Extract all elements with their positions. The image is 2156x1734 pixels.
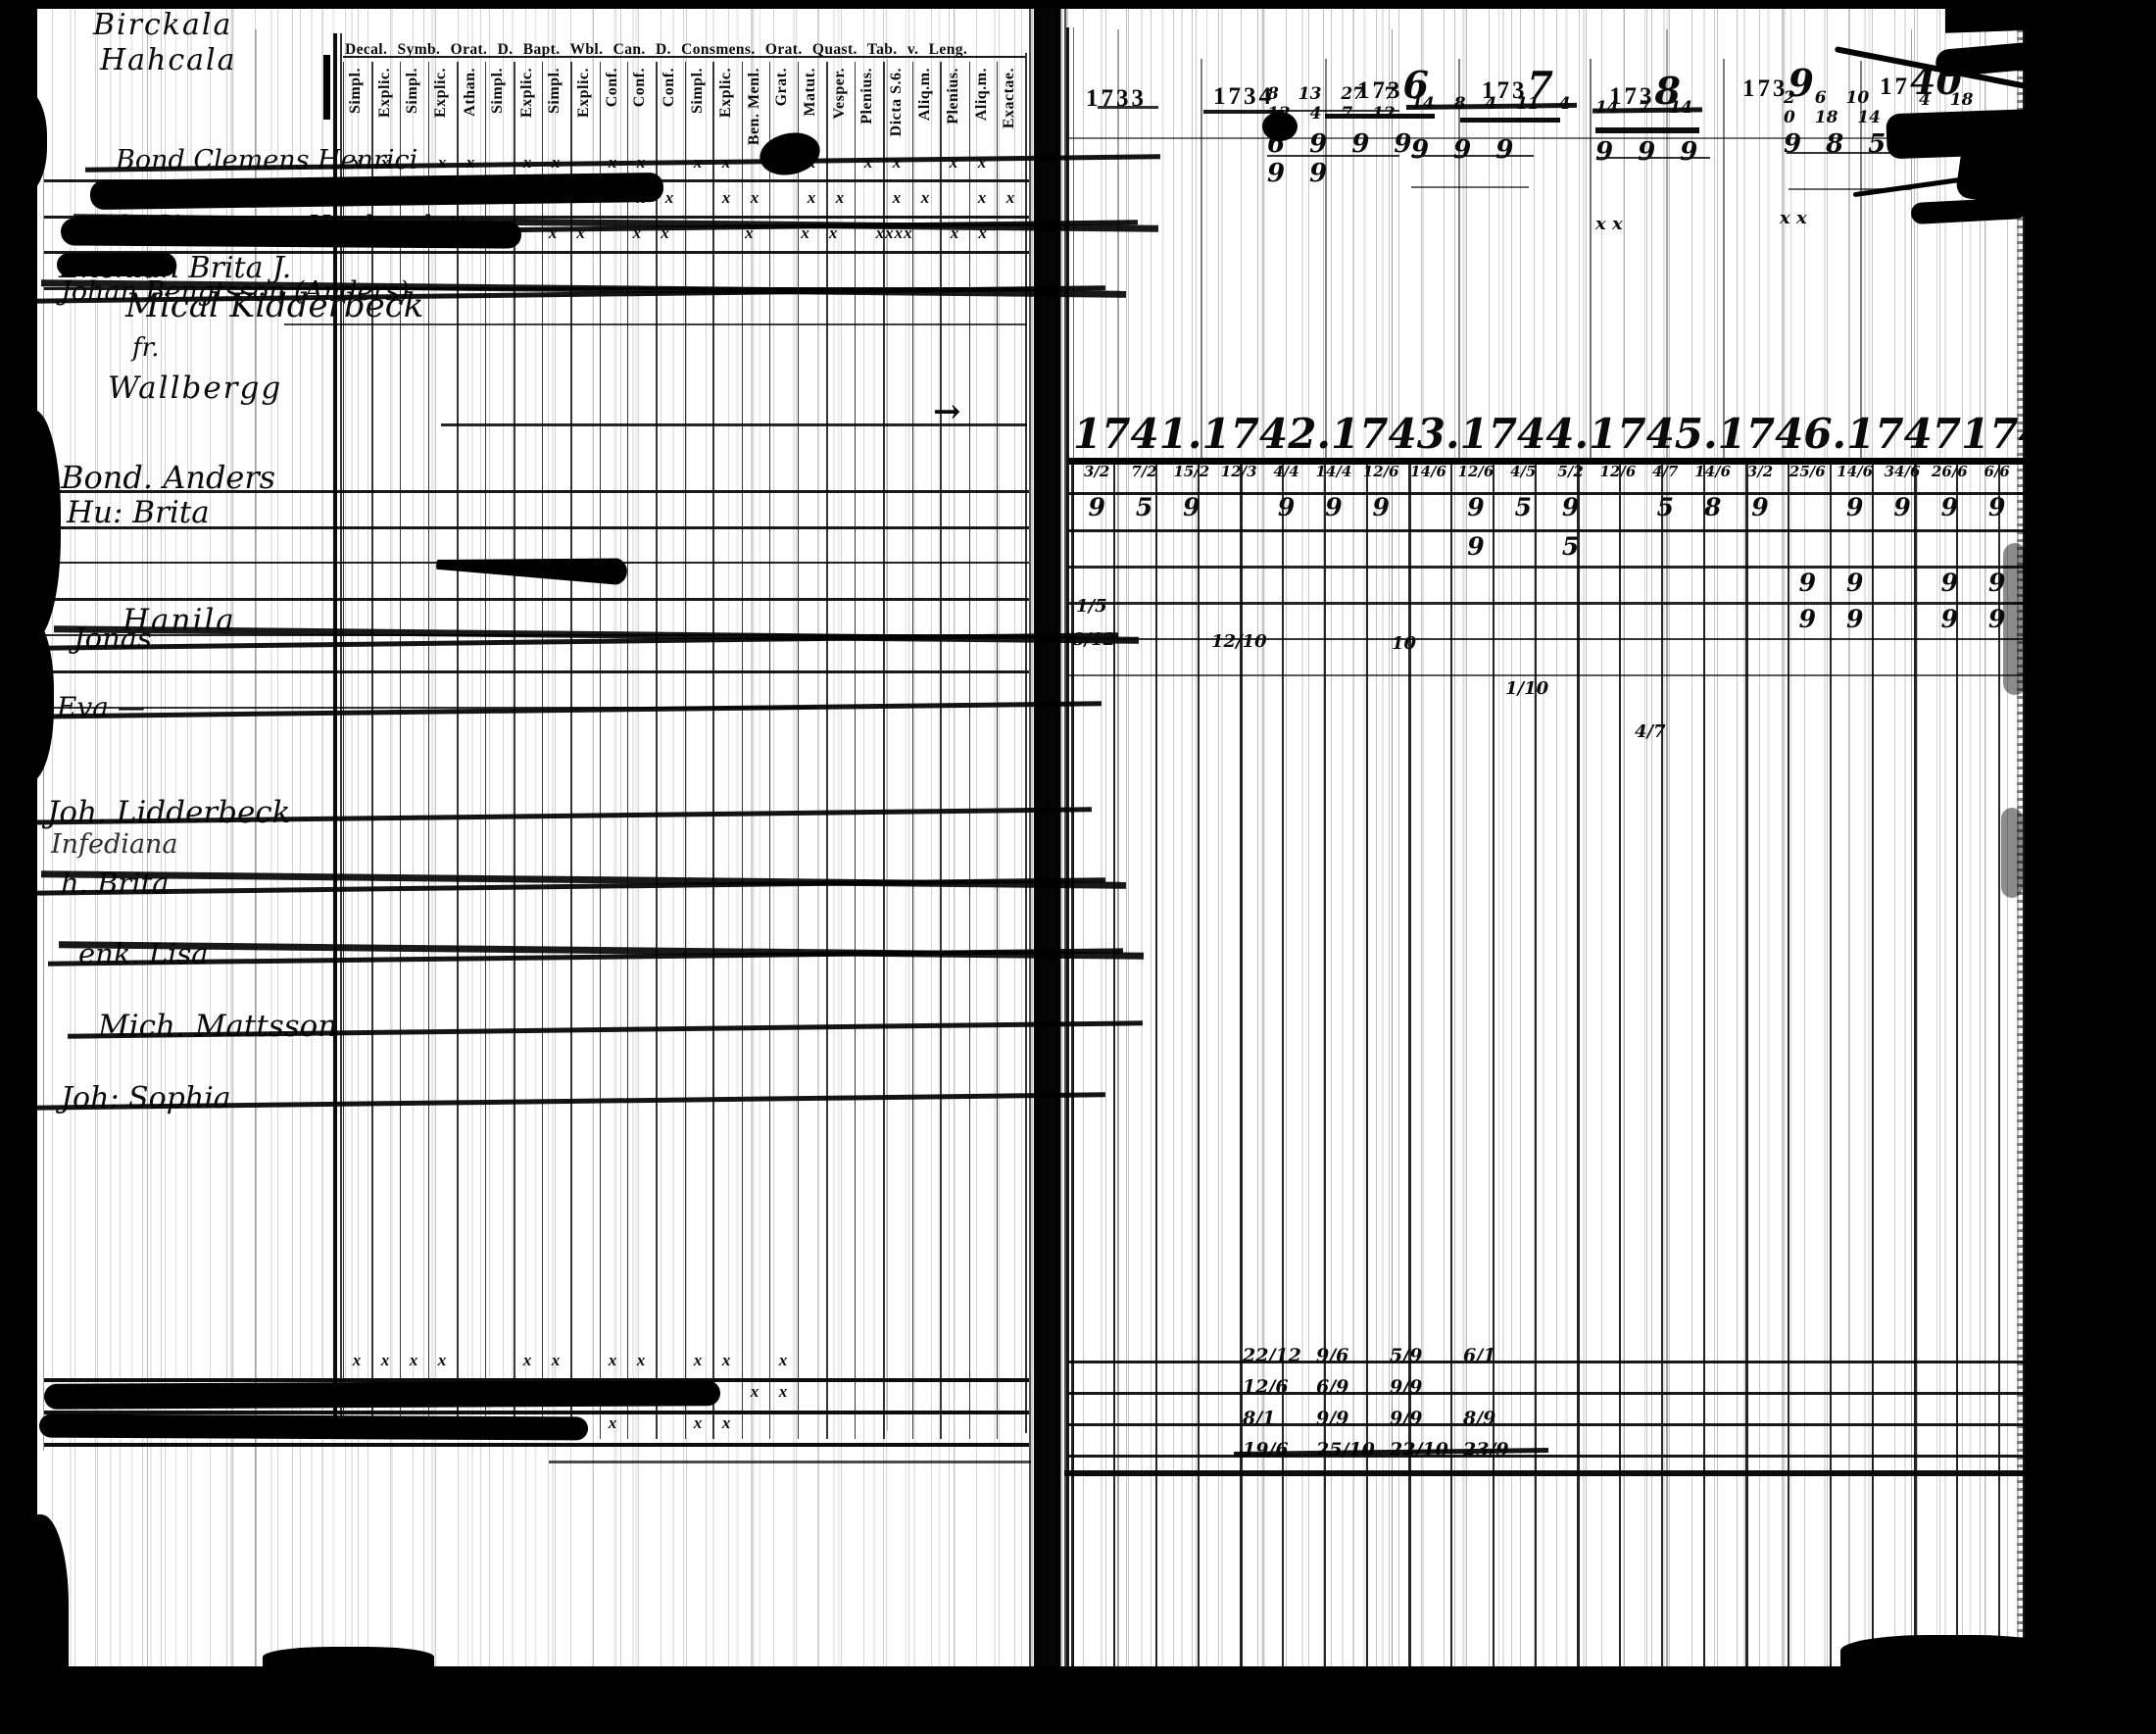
x-mark-cell <box>855 1413 883 1443</box>
year-label: 1744. <box>1460 410 1590 458</box>
grid-column: Matut. <box>798 62 826 1439</box>
x-mark-cell: x <box>371 1351 400 1380</box>
communion-date: 25/10 <box>1316 1439 1390 1461</box>
column-label: Conf. <box>631 68 649 107</box>
attendance-row: 95 <box>1073 532 2021 561</box>
communion-date: 14/6 <box>1689 463 1736 480</box>
rule-line <box>1064 1470 2033 1476</box>
g-mark <box>1215 569 1262 597</box>
grid-column: Explic. <box>428 62 457 1439</box>
communion-group: 14 7 14 9 9 9 <box>1595 98 1697 167</box>
name-entry: Eva — <box>57 691 1061 723</box>
g-mark <box>1262 605 1309 633</box>
grid-column: Conf. <box>656 62 685 1439</box>
rule-line <box>1956 458 1958 1666</box>
communion-date: 8/9 <box>1463 1408 1537 1429</box>
x-mark-cell: x <box>712 1413 741 1443</box>
g-mark <box>1357 605 1404 633</box>
rule-line <box>1200 59 1202 458</box>
communion-group: 2 6 10 0 18 14 9 8 5 <box>1784 88 1886 159</box>
g-mark <box>1120 569 1167 597</box>
communion-date: 3/2 <box>1737 463 1784 480</box>
attendance-marks: 9 8 5 <box>1784 129 1886 159</box>
x-mark-cell <box>826 1351 855 1380</box>
x-mark-cell <box>570 1351 599 1380</box>
x-mark-cell: x <box>769 1351 798 1380</box>
communion-date: 9/9 <box>1390 1376 1463 1398</box>
attendance-row: 9999 <box>1073 605 2021 633</box>
grid-column: Explic. <box>712 62 742 1439</box>
g-mark <box>1310 569 1357 597</box>
communion-date: 14/4 <box>1310 463 1357 480</box>
x-mark-cell: x <box>627 1351 656 1380</box>
year-label: 1734 <box>1213 69 1274 113</box>
edge-vignette-left <box>0 0 37 1734</box>
attendance-row: 9599999595899999 <box>1073 493 2021 521</box>
communion-date: 4/4 <box>1262 463 1309 480</box>
g-mark <box>1879 569 1926 597</box>
grid-column: Explic. <box>514 62 543 1439</box>
x-mark-cell <box>627 1413 656 1443</box>
g-mark <box>1879 532 1926 561</box>
g-mark: 5 <box>1120 493 1167 521</box>
communion-date: 14/6 <box>1404 463 1451 480</box>
column-label: Vesper. <box>831 68 849 120</box>
g-mark <box>1120 532 1167 561</box>
communion-date: 15/2 <box>1168 463 1215 480</box>
rule-line <box>1619 458 1621 1666</box>
g-mark: 9 <box>1832 569 1879 597</box>
rule-line <box>1324 458 1326 1666</box>
communion-date: 22/12 <box>1243 1345 1316 1366</box>
rule-line <box>1068 674 2031 676</box>
g-mark <box>1689 532 1736 561</box>
x-mark-cell <box>826 1413 855 1443</box>
rule-line <box>1068 1455 2031 1458</box>
communion-date: 6/9 <box>1316 1376 1390 1398</box>
g-mark <box>1452 605 1499 633</box>
bottom-dates-row: 8/19/99/98/9 <box>1243 1408 1537 1429</box>
edge-vignette-bottom <box>0 1666 2156 1734</box>
rule-line <box>1282 458 1284 1666</box>
x-mark-cell <box>741 1351 769 1380</box>
grid-column: Simpl. <box>685 62 713 1439</box>
rule-line <box>43 118 44 1451</box>
x-mark-cell <box>457 1351 485 1380</box>
g-mark <box>1737 569 1784 597</box>
x-mark-cell <box>911 1413 940 1443</box>
x-mark-row: xxxxxxxxxxx <box>343 1351 1025 1380</box>
grid-column: Explic. <box>371 62 401 1439</box>
communion-dates-row: 3/27/215/212/34/414/412/614/612/64/55/21… <box>1073 463 2021 480</box>
communion-date: 14/6 <box>1832 463 1879 480</box>
g-mark <box>1168 532 1215 561</box>
grid-column: Aliq.m. <box>912 62 941 1439</box>
stray-mark: 12/10 <box>1211 631 1267 652</box>
grid-column: Simpl. <box>485 62 514 1439</box>
communion-dates-line: 4 18 <box>1919 90 1973 110</box>
rule-line <box>1366 458 1368 1666</box>
communion-date: 12/6 <box>1357 463 1404 480</box>
g-mark <box>1499 569 1546 597</box>
column-label: Conf. <box>661 68 678 107</box>
g-mark <box>1879 605 1926 633</box>
communion-date: 9/6 <box>1316 1345 1390 1366</box>
ink-blob <box>1262 112 1298 141</box>
g-mark: 9 <box>1310 493 1357 521</box>
column-label: Explic. <box>432 68 450 118</box>
g-mark <box>1784 532 1831 561</box>
bottom-dates-row: 12/66/99/9 <box>1243 1376 1537 1398</box>
x-mark-cell: x <box>599 1413 627 1443</box>
g-mark <box>1926 532 1973 561</box>
x-mark-cell <box>798 1413 826 1443</box>
communion-date: 4/7 <box>1641 463 1689 480</box>
x-mark-cell: x <box>684 1413 712 1443</box>
communion-dates-line: 14 7 14 <box>1595 98 1697 118</box>
g-mark <box>1262 532 1309 561</box>
edge-blob <box>0 1514 69 1734</box>
column-label: Simpl. <box>689 68 707 114</box>
g-mark: 5 <box>1546 532 1593 561</box>
grid-column: Conf. <box>600 62 628 1439</box>
column-label: Plenius. <box>945 68 962 124</box>
g-mark <box>1689 605 1736 633</box>
g-mark <box>1641 532 1689 561</box>
rule-line <box>1723 59 1725 458</box>
g-mark <box>1310 532 1357 561</box>
grid-column: Explic. <box>570 62 600 1439</box>
column-label: Matut. <box>802 68 819 117</box>
name-entry: Infediana <box>51 829 178 860</box>
year-label: 1747 <box>1846 410 1961 458</box>
stray-mark: x x <box>1595 214 1623 234</box>
g-mark <box>1737 605 1784 633</box>
ink-blob <box>44 1380 720 1410</box>
year-label: 1745. <box>1589 410 1718 458</box>
g-mark <box>1404 493 1451 521</box>
communion-date: 6/1 <box>1463 1345 1537 1366</box>
year-printed: 1734 <box>1213 83 1274 110</box>
column-label: Explic. <box>518 68 536 118</box>
column-label: Simpl. <box>404 68 421 114</box>
column-label: Plenius. <box>858 68 876 124</box>
communion-date: 12/6 <box>1594 463 1641 480</box>
communion-date: 25/6 <box>1784 463 1831 480</box>
g-mark <box>1784 493 1831 521</box>
scan-speckle <box>2017 0 2068 1734</box>
x-mark-cell <box>826 1382 855 1412</box>
g-mark: 5 <box>1499 493 1546 521</box>
name-entry: Joh. Lidderbeck <box>47 795 1052 830</box>
g-mark: 9 <box>1784 605 1831 633</box>
name-entry: Mical Kidderbeck <box>125 286 423 325</box>
g-mark: 9 <box>1832 605 1879 633</box>
stray-mark: 1/10 <box>1505 678 1548 699</box>
communion-date: 9/9 <box>1316 1408 1390 1429</box>
x-mark-cell: x <box>769 1382 798 1412</box>
communion-date: 3/2 <box>1073 463 1120 480</box>
years-1741-1748: 1741.1742.1743.1744.1745.1746.17471748 <box>1073 410 1984 458</box>
attendance-marks: 9 9 9 <box>1595 137 1697 167</box>
year-label: 1741. <box>1073 410 1202 458</box>
x-mark-cell <box>911 1351 940 1380</box>
place-name-birckala: Birckala <box>93 8 232 42</box>
g-mark: 9 <box>1974 493 2021 521</box>
communion-dates-line: 0 18 14 <box>1784 108 1886 127</box>
g-mark <box>1499 532 1546 561</box>
x-mark-cell <box>940 1351 968 1380</box>
edge-blob <box>0 90 47 193</box>
x-mark-cell <box>485 1351 514 1380</box>
g-mark <box>1689 569 1736 597</box>
name-entry: Joh: Sophia <box>61 1081 1065 1115</box>
communion-dates-line: 8 13 27 7 <box>1267 84 1412 104</box>
g-mark <box>1215 493 1262 521</box>
communion-date: 8/1 <box>1243 1408 1316 1429</box>
grid-column: Grat. <box>769 62 798 1439</box>
g-mark <box>1737 532 1784 561</box>
ink-blob <box>61 218 521 248</box>
name-entry: Bond Clemens Henrici <box>116 145 1120 175</box>
name-entry: enk. Lisa <box>78 937 1083 970</box>
g-mark: 9 <box>1168 493 1215 521</box>
grid-column: Conf. <box>627 62 656 1439</box>
grid-column: Plenius. <box>855 62 883 1439</box>
rule-line <box>44 598 1029 601</box>
g-mark <box>1073 569 1120 597</box>
x-mark-cell <box>798 1351 826 1380</box>
g-mark <box>1215 532 1262 561</box>
rule-line <box>44 670 1029 673</box>
communion-date: 4/5 <box>1499 463 1546 480</box>
x-mark-cell: x <box>400 1351 428 1380</box>
x-mark-cell: x <box>684 1351 712 1380</box>
g-mark <box>1215 605 1262 633</box>
x-mark-cell <box>997 1351 1025 1380</box>
communion-date: 26/6 <box>1926 463 1973 480</box>
catechism-grid: Simpl.Explic.Simpl.Explic.Athan.Simpl.Ex… <box>343 62 1025 1439</box>
rule-line <box>1666 29 1668 1666</box>
rule-line <box>1577 458 1580 1666</box>
rule-line <box>1703 458 1705 1666</box>
g-mark <box>1594 493 1641 521</box>
rule-line <box>1025 53 1027 1433</box>
place-name-hahcala: Hahcala <box>100 43 237 77</box>
g-mark <box>1594 569 1641 597</box>
rule-line <box>1117 29 1119 1666</box>
column-label: Explic. <box>376 68 394 118</box>
g-mark <box>1641 569 1689 597</box>
right-page: 1733 1734 1736 1737 1738 1739 1740 8 13 … <box>1060 8 2031 1666</box>
x-mark-cell: x <box>428 1351 457 1380</box>
edge-vignette-top <box>0 0 2156 9</box>
x-mark-cell <box>968 1351 997 1380</box>
year-label: 1743. <box>1331 410 1460 458</box>
g-mark <box>1073 532 1120 561</box>
communion-date: 34/6 <box>1879 463 1926 480</box>
g-mark: 9 <box>1926 493 1973 521</box>
grid-column: Exactae. <box>997 62 1025 1439</box>
name-entry: Hanila <box>122 603 236 638</box>
rule-line <box>343 56 1025 58</box>
stray-mark: x x <box>1780 208 1807 228</box>
g-mark: 5 <box>1641 493 1689 521</box>
x-mark-cell: x <box>514 1351 542 1380</box>
communion-date: 5/9 <box>1390 1345 1463 1366</box>
arrow-mark: → <box>933 392 961 431</box>
name-entry: Wallbergg <box>108 371 282 406</box>
x-mark-cell <box>656 1413 684 1443</box>
communion-dates-line: 2 6 10 <box>1784 88 1886 108</box>
column-label: Conf. <box>604 68 621 107</box>
column-label: Simpl. <box>546 68 563 114</box>
communion-date: 12/6 <box>1452 463 1499 480</box>
column-label: Simpl. <box>489 68 507 114</box>
rule-line <box>323 55 330 120</box>
communion-dates-line: 14 8 4 11 4 <box>1411 94 1570 114</box>
rule-line <box>1872 458 1874 1666</box>
g-mark <box>1357 532 1404 561</box>
g-mark <box>1357 569 1404 597</box>
rule-line <box>1198 458 1200 1666</box>
rule-line <box>1911 29 1912 1666</box>
rule-line <box>1535 458 1537 1666</box>
x-mark-cell <box>940 1413 968 1443</box>
column-label: Ben. Menl. <box>746 68 763 145</box>
grid-column: Simpl. <box>343 62 371 1439</box>
year-printed: 173 <box>1742 75 1788 102</box>
rule-line <box>1068 1361 2031 1363</box>
g-mark <box>1168 605 1215 633</box>
g-mark: 9 <box>1737 493 1784 521</box>
rule-line <box>1411 186 1529 188</box>
name-entry: h. Brita <box>61 867 1065 900</box>
g-mark <box>1641 605 1689 633</box>
g-mark <box>1404 532 1451 561</box>
column-label: Explic. <box>717 68 735 118</box>
x-mark-cell <box>855 1351 883 1380</box>
g-mark <box>1594 605 1641 633</box>
g-mark: 9 <box>1784 569 1831 597</box>
grid-column: Simpl. <box>400 62 428 1439</box>
year-label: 1746. <box>1718 410 1847 458</box>
x-mark-cell <box>769 1413 798 1443</box>
column-label: Explic. <box>575 68 593 118</box>
x-mark-cell: x <box>343 1351 371 1380</box>
communion-date: 12/3 <box>1215 463 1262 480</box>
rule-line <box>1914 458 1917 1666</box>
stray-mark: 10 <box>1392 633 1416 654</box>
ink-blob <box>39 1414 588 1441</box>
column-label: Aliq.m. <box>916 68 934 121</box>
rule-line <box>1590 59 1592 458</box>
rule-line <box>1998 458 2000 1666</box>
edge-blob <box>0 616 54 782</box>
rule-line <box>1098 106 1158 109</box>
communion-date: 23/9 <box>1463 1439 1537 1461</box>
g-mark: 9 <box>1073 493 1120 521</box>
rule-line <box>44 1443 1029 1447</box>
x-mark-cell <box>911 1382 940 1412</box>
g-mark <box>1120 605 1167 633</box>
communion-date: 19/6 <box>1243 1439 1316 1461</box>
column-label: Exactae. <box>1001 68 1018 128</box>
communion-date: 5/2 <box>1546 463 1593 480</box>
grid-column: Simpl. <box>542 62 570 1439</box>
scanned-register-spread: Birckala Hahcala Decal. Symb. Orat. D. B… <box>0 0 2156 1734</box>
grid-column: Aliq.m. <box>969 62 998 1439</box>
g-mark <box>1546 605 1593 633</box>
grid-column: Ben. Menl. <box>742 62 770 1439</box>
x-mark-cell: x <box>741 1382 769 1412</box>
x-mark-cell <box>997 1413 1025 1443</box>
name-entry: Hu: Brita <box>67 495 210 530</box>
communion-group: 14 8 4 11 4 9 9 9 <box>1411 94 1570 165</box>
attendance-marks: 9 9 <box>1267 159 1412 188</box>
bottom-dates-row: 22/129/65/96/1 <box>1243 1345 1537 1366</box>
g-mark <box>1546 569 1593 597</box>
rule-line <box>549 1461 1031 1463</box>
communion-group: 4 18 <box>1919 90 1973 110</box>
communion-date: 22/10 <box>1390 1439 1463 1461</box>
g-mark <box>1452 569 1499 597</box>
x-mark-cell <box>968 1413 997 1443</box>
rule-line <box>1068 1392 2031 1395</box>
rule-line <box>1493 458 1494 1666</box>
x-mark-cell: x <box>542 1351 570 1380</box>
g-mark <box>1404 605 1451 633</box>
column-label: Simpl. <box>347 68 365 114</box>
g-mark <box>1262 569 1309 597</box>
g-mark <box>1310 605 1357 633</box>
rule-line <box>1155 458 1157 1666</box>
name-entry: Bond. Anders <box>61 459 275 496</box>
x-mark-cell <box>997 1382 1025 1412</box>
rule-line <box>1830 458 1832 1666</box>
g-mark: 9 <box>1546 493 1593 521</box>
communion-date <box>1463 1376 1537 1398</box>
gutter-shadow <box>1029 0 1068 1734</box>
bottom-dates-row: 19/625/1022/1023/9 <box>1243 1439 1537 1461</box>
g-mark: 9 <box>1262 493 1309 521</box>
g-mark <box>1168 569 1215 597</box>
communion-date: 12/6 <box>1243 1376 1316 1398</box>
g-mark <box>1594 532 1641 561</box>
x-mark-cell <box>940 1382 968 1412</box>
g-mark: 9 <box>1832 493 1879 521</box>
x-mark-cell <box>798 1382 826 1412</box>
g-mark: 9 <box>1357 493 1404 521</box>
column-label: Aliq.m. <box>973 68 991 121</box>
ink-blob <box>57 253 176 276</box>
x-mark-cell <box>855 1382 883 1412</box>
g-mark: 9 <box>1879 493 1926 521</box>
grid-column: Plenius. <box>940 62 969 1439</box>
edge-blob <box>0 410 61 640</box>
x-mark-cell: x <box>712 1351 741 1380</box>
rule-line <box>1661 458 1663 1666</box>
stray-mark: 8/12 <box>1072 629 1115 650</box>
x-mark-cell <box>741 1413 769 1443</box>
stray-mark: 1/5 <box>1076 596 1107 617</box>
rule-line <box>1788 458 1789 1666</box>
x-mark-cell: x <box>599 1351 627 1380</box>
g-mark: 9 <box>1452 532 1499 561</box>
g-mark: 8 <box>1689 493 1736 521</box>
attendance-row: 9999 <box>1073 569 2021 597</box>
g-mark <box>1499 605 1546 633</box>
